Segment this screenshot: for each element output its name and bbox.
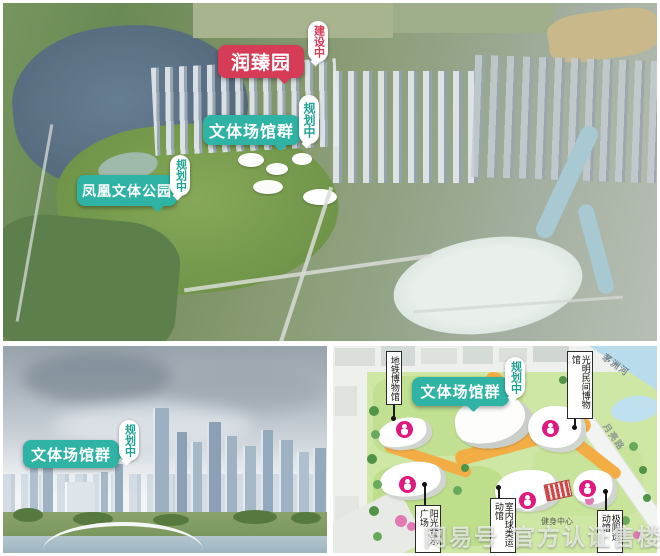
venue-building <box>238 153 264 167</box>
venue-building <box>292 153 312 165</box>
leader-dot <box>603 489 608 494</box>
highrise-cluster <box>333 71 483 183</box>
bush <box>13 508 43 522</box>
label-venues-cluster: 文体场馆群 <box>203 115 300 145</box>
city-cluster-right <box>471 55 657 183</box>
label-runzhenyuan: 润臻园 <box>218 45 304 78</box>
leader-line <box>424 486 426 505</box>
venue-marker-icon <box>542 420 559 437</box>
watermark-text: 官方认证售楼处 <box>512 518 660 552</box>
tree <box>369 506 379 516</box>
leader-dot <box>391 416 396 421</box>
aerial-render-panel: 润臻园 建设中 文体场馆群 规划中 凤凰文体公园 规划中 <box>3 3 657 341</box>
tree <box>461 464 469 472</box>
label-venues-cluster-skyline: 文体场馆群 <box>23 440 119 468</box>
leader-dot <box>422 482 427 487</box>
pink-tree <box>395 515 407 527</box>
tree <box>367 454 377 464</box>
tree <box>629 442 638 451</box>
tree <box>643 494 651 502</box>
wetland <box>387 225 588 341</box>
watermark-brand: 网易号 <box>424 518 499 552</box>
pink-tree <box>585 496 594 505</box>
tree <box>559 376 567 384</box>
tree <box>453 486 462 495</box>
venue-marker-icon <box>579 480 596 497</box>
venue-building <box>253 180 283 194</box>
field-strip <box>193 3 393 38</box>
tag-planning-map: 规划中 <box>505 357 525 398</box>
tree <box>373 532 382 541</box>
leader-line <box>605 493 607 510</box>
tag-planning-park: 规划中 <box>170 155 190 196</box>
tree <box>371 430 380 439</box>
tag-planning-venues: 规划中 <box>299 95 319 144</box>
real-estate-promo-collage: 润臻园 建设中 文体场馆群 规划中 凤凰文体公园 规划中 文体场馆群 规划中 <box>0 0 660 556</box>
dark-park-corner <box>3 210 184 341</box>
tag-planning-skyline: 规划中 <box>119 420 139 461</box>
venue-label-folk-museum: 光明民间博物馆 <box>567 351 593 419</box>
leader-dot <box>572 425 577 430</box>
tag-under-construction: 建设中 <box>308 21 328 62</box>
bush <box>291 512 321 524</box>
tree <box>373 480 382 489</box>
field-strip <box>393 3 553 33</box>
venue-marker-icon <box>519 492 536 509</box>
bush <box>233 510 277 524</box>
venue-building <box>266 163 288 175</box>
venue-label-metro-museum: 地铁博物馆 <box>386 351 402 405</box>
venue-marker-icon <box>399 476 416 493</box>
leader-line <box>498 489 500 498</box>
skyline-render-panel: 文体场馆群 规划中 <box>3 346 327 553</box>
river <box>576 202 615 295</box>
venue-marker-icon <box>396 421 413 438</box>
tree <box>639 466 647 474</box>
label-venues-cluster-map: 文体场馆群 <box>412 377 509 406</box>
leader-dot <box>496 485 501 490</box>
tree <box>369 406 379 416</box>
watermark: 网易号 官方认证售楼处 <box>424 518 660 552</box>
label-phoenix-park: 凤凰文体公园 <box>77 175 177 206</box>
